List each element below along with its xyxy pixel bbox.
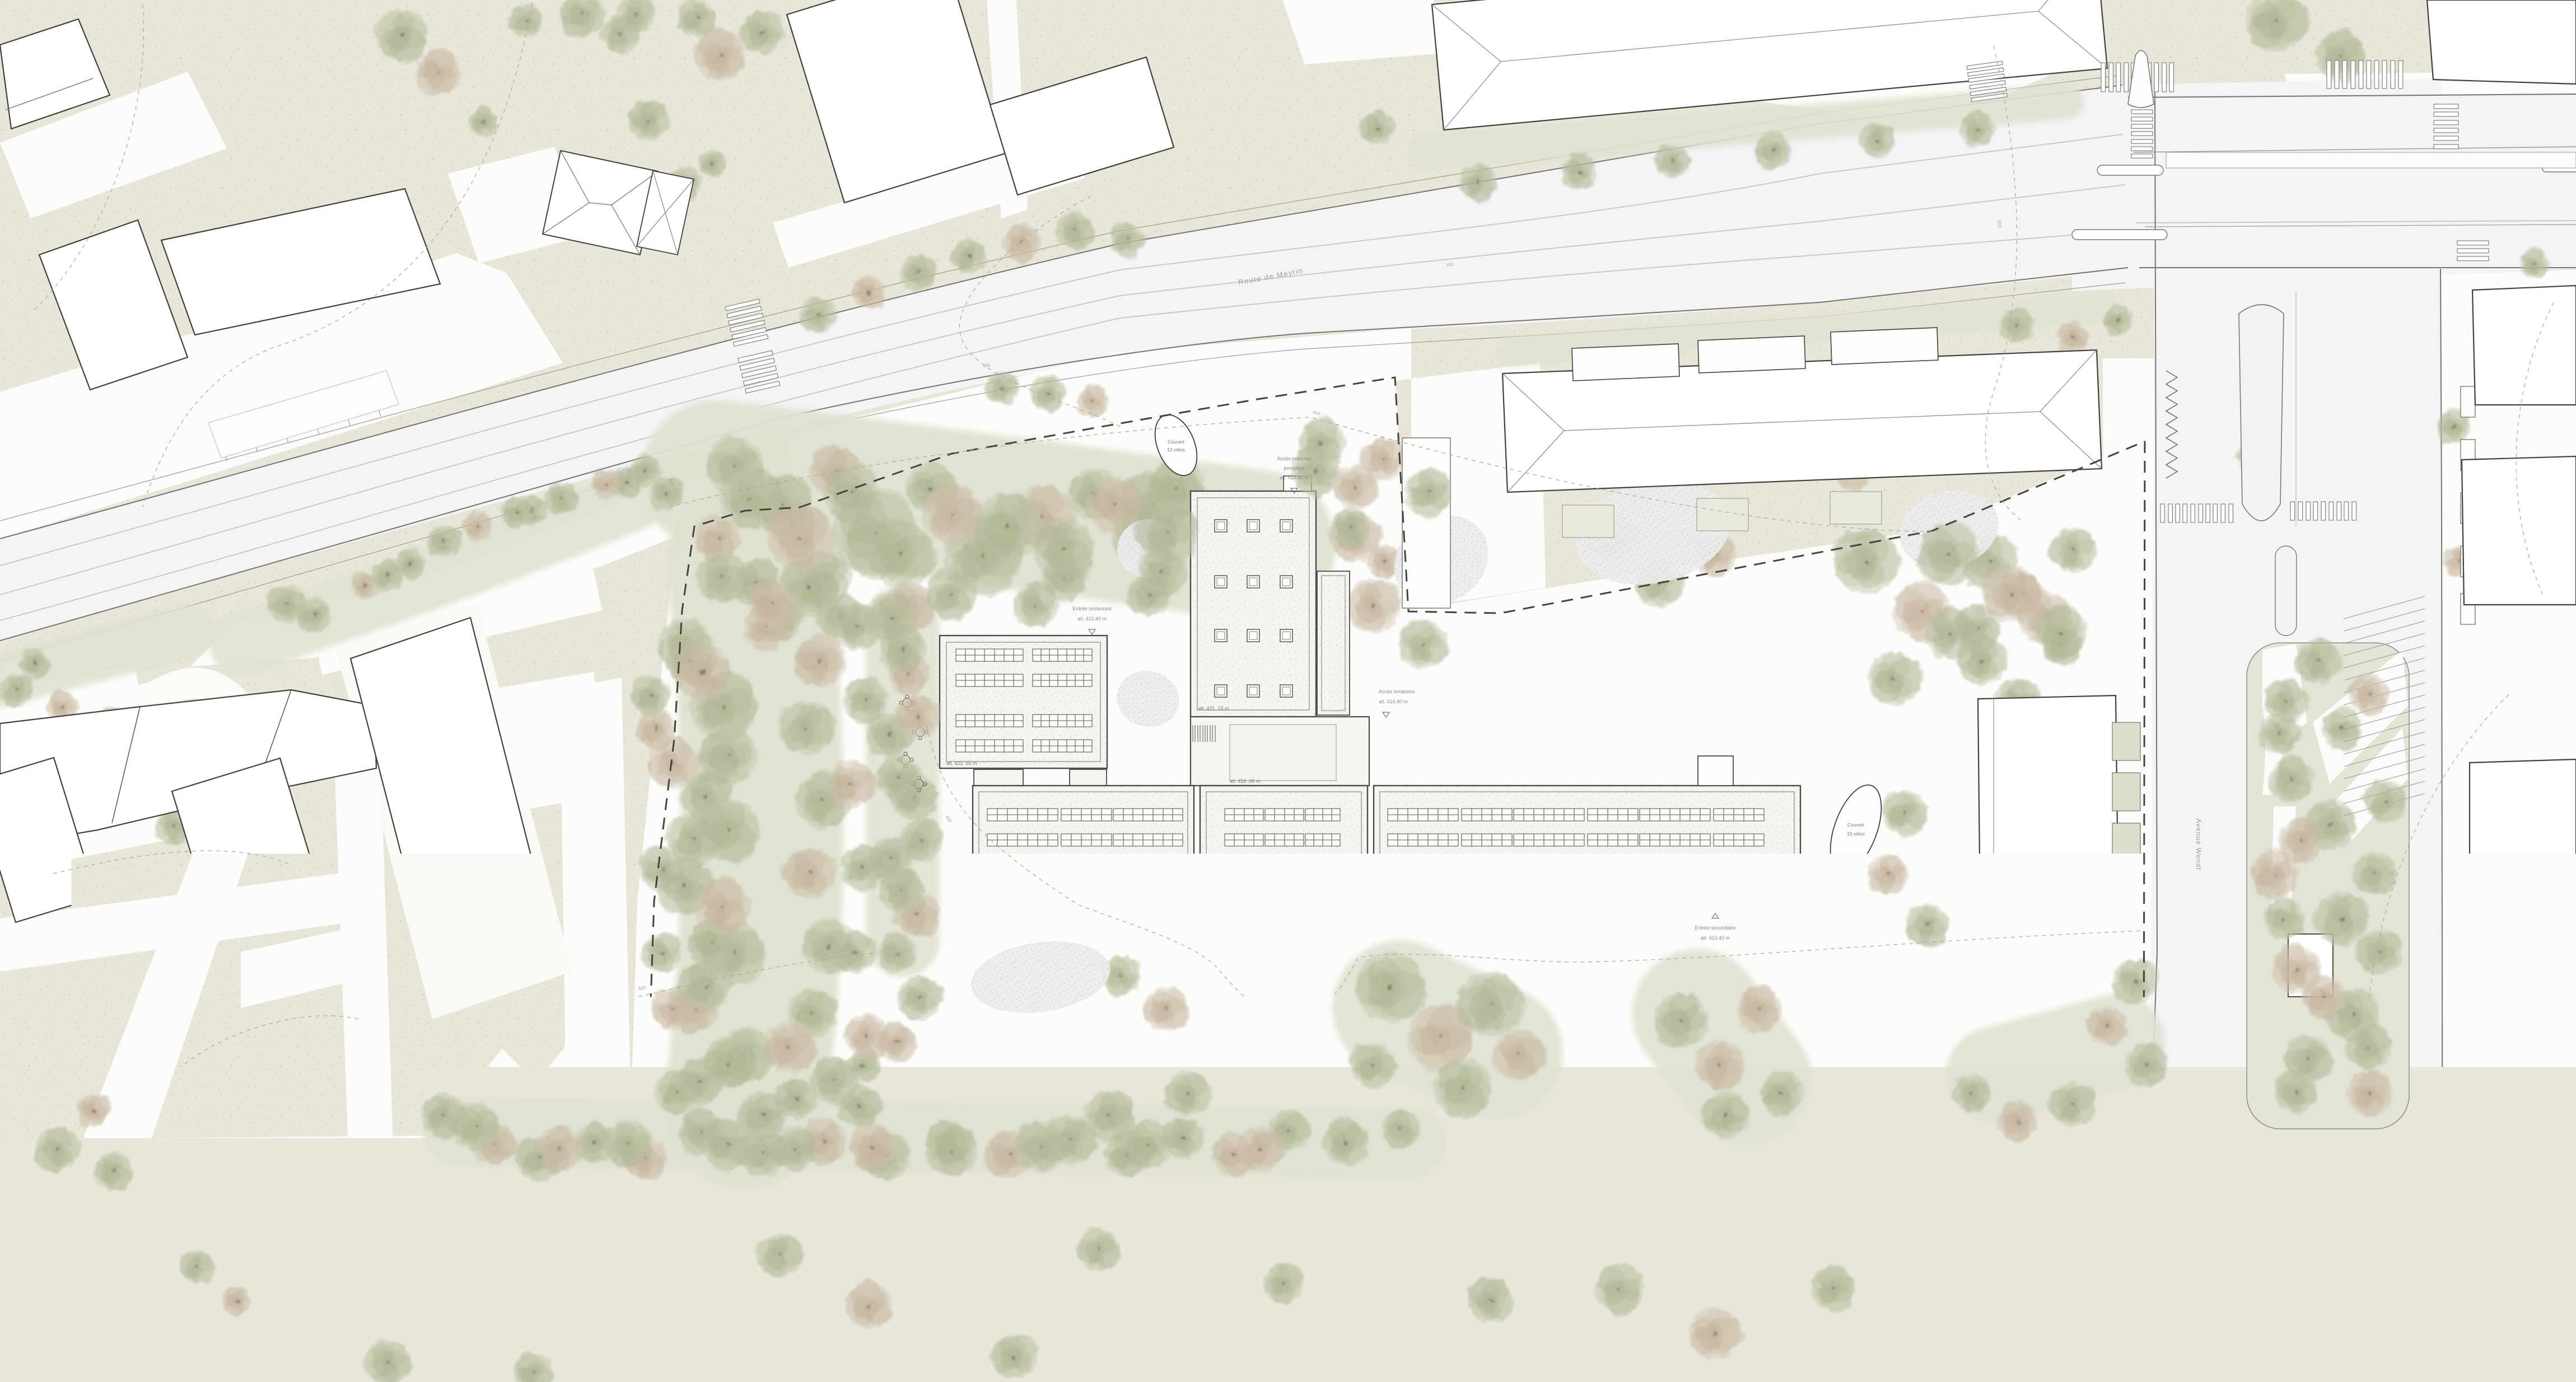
svg-text:Avenue Wendt: Avenue Wendt [2195,819,2202,871]
svg-text:Couvert: Couvert [1757,1042,1774,1047]
svg-text:alt. 410.40 m: alt. 410.40 m [1379,699,1408,704]
svg-text:Entrée principale: Entrée principale [1263,1028,1301,1033]
svg-text:alt. 416 .00 m: alt. 416 .00 m [1230,778,1261,784]
svg-text:Accès matériel/: Accès matériel/ [1277,456,1312,461]
svg-text:alt. 422 .55 m: alt. 422 .55 m [1733,872,1764,877]
svg-text:pompiers: pompiers [1284,465,1305,471]
svg-text:411: 411 [1446,262,1454,268]
svg-text:17 vélos: 17 vélos [1756,1050,1774,1056]
svg-text:Accès livraisons: Accès livraisons [1379,689,1415,694]
svg-text:alt. 410.40 m: alt. 410.40 m [1268,1035,1297,1041]
svg-text:alt. 421 .15 m: alt. 421 .15 m [1198,706,1229,711]
svg-text:alt. 422 .55 m: alt. 422 .55 m [980,872,1011,877]
svg-text:Rue Liotard: Rue Liotard [1079,1176,1122,1184]
svg-text:Entrée restaurant: Entrée restaurant [1072,606,1112,611]
svg-text:alt. 410.40 m: alt. 410.40 m [1280,475,1309,480]
svg-text:Entrée secondaire: Entrée secondaire [1695,925,1735,931]
svg-text:Couvert: Couvert [1168,439,1184,445]
svg-text:410: 410 [1996,220,2002,228]
svg-text:alt. 410.40 m: alt. 410.40 m [1077,616,1107,622]
svg-text:alt. 423 .05 m: alt. 423 .05 m [1344,872,1375,877]
svg-text:12 vélos: 12 vélos [1167,447,1185,452]
svg-text:alt. 422 .55 m: alt. 422 .55 m [946,760,977,766]
svg-text:Couvert: Couvert [1847,822,1864,828]
svg-text:15 vélos: 15 vélos [1847,831,1865,837]
svg-text:alt. 410.40 m: alt. 410.40 m [1701,935,1730,941]
